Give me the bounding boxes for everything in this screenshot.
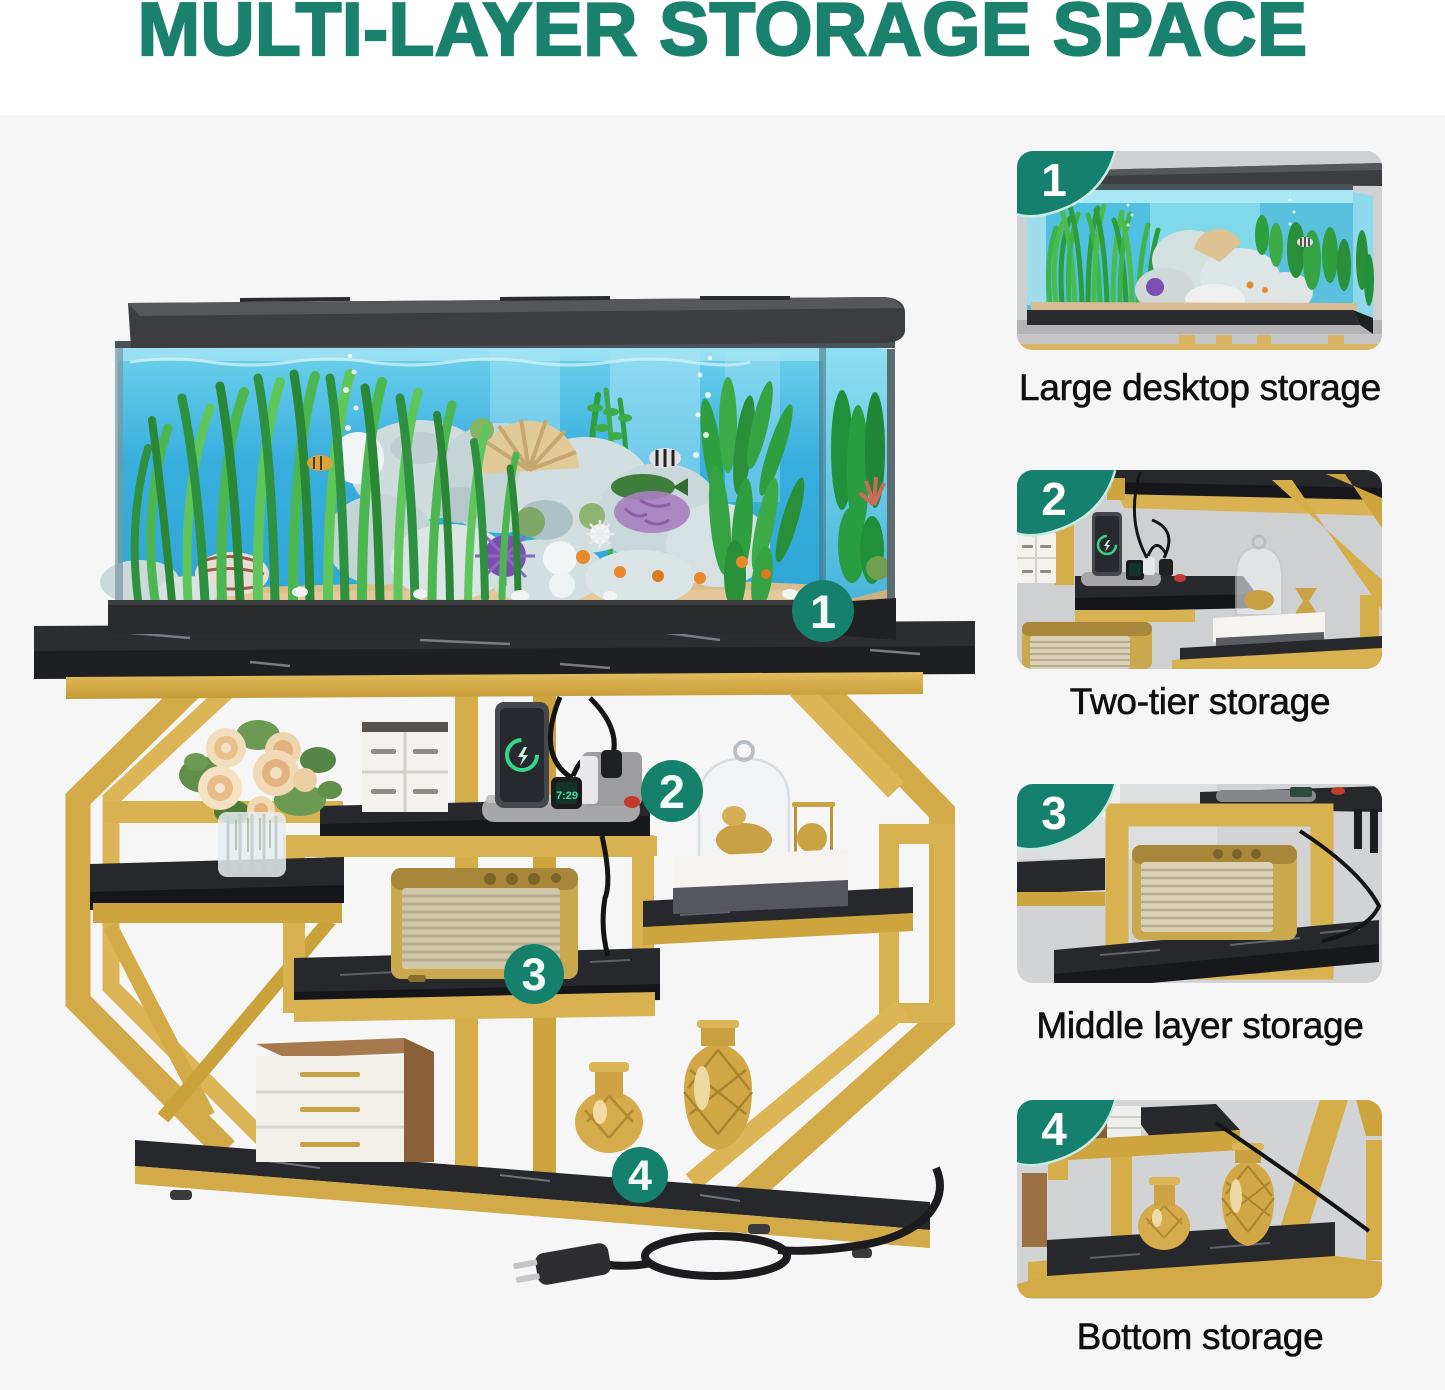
svg-text:4: 4 xyxy=(628,1152,652,1200)
svg-text:1: 1 xyxy=(1041,154,1067,206)
svg-text:2: 2 xyxy=(659,765,685,818)
svg-text:1: 1 xyxy=(810,585,836,638)
svg-text:7:29: 7:29 xyxy=(556,790,578,802)
svg-text:2: 2 xyxy=(1041,473,1067,525)
svg-text:4: 4 xyxy=(1041,1103,1067,1155)
svg-text:3: 3 xyxy=(521,949,546,1000)
svg-text:3: 3 xyxy=(1041,787,1067,839)
